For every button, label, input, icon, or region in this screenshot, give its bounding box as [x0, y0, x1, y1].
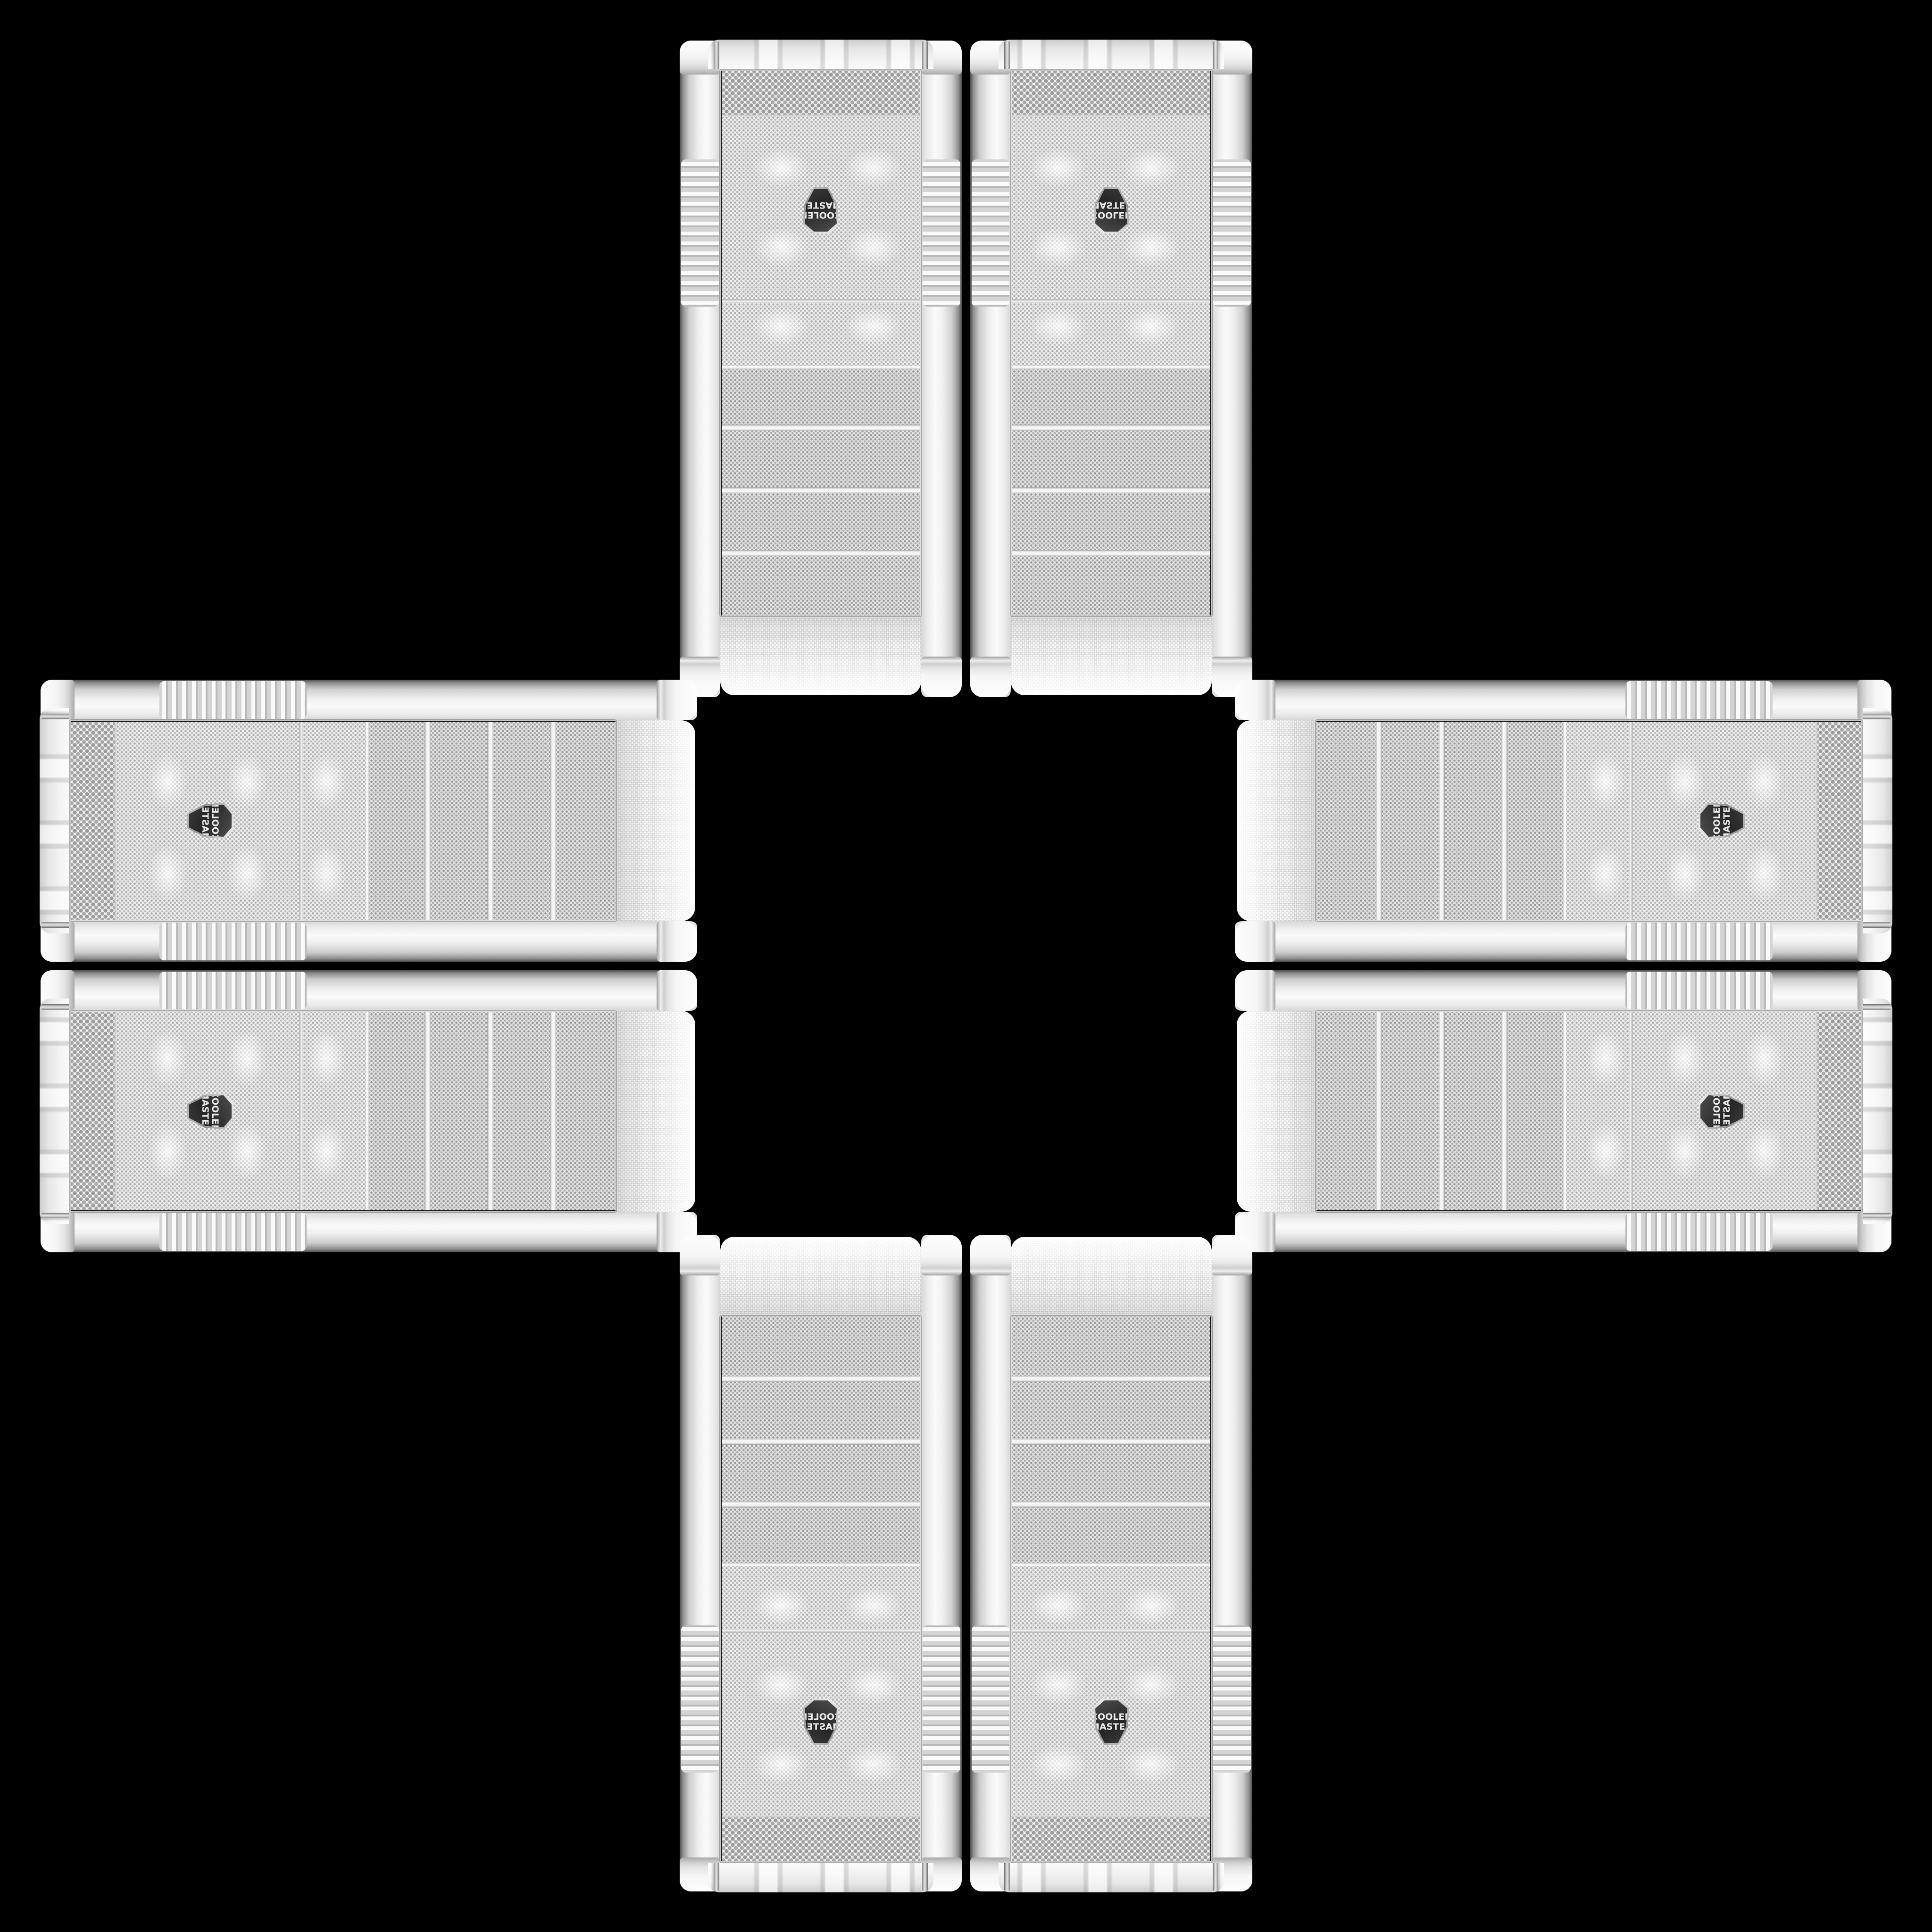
case-front-panel: COOLER MASTER [38, 970, 702, 1252]
rib-grip [681, 159, 719, 307]
bottom-lip [999, 1863, 1224, 1892]
bay-separator [1501, 1012, 1507, 1210]
panel-groove [1012, 1629, 1210, 1633]
drive-bay-mesh [722, 1316, 920, 1566]
top-mesh-dome [1237, 720, 1314, 921]
side-rail-left [41, 921, 697, 962]
chrome-trim-left [1010, 71, 1012, 616]
chrome-trim-left [920, 71, 922, 616]
front-fan-mesh [1566, 1012, 1816, 1210]
bay-separator [425, 1012, 431, 1210]
bottom-mesh-band [70, 722, 116, 920]
rib-grip [681, 1625, 719, 1773]
bottom-mesh-band [1012, 1816, 1210, 1862]
drive-bay-mesh [1316, 722, 1566, 920]
bay-separator [1012, 1501, 1210, 1507]
cooler-master-badge: COOLER MASTER [1699, 803, 1745, 839]
rail-cap-top [657, 921, 697, 962]
rib-grip [923, 1625, 960, 1773]
front-fan-mesh [722, 116, 920, 366]
badge-text-line1: COOLER [1712, 1091, 1722, 1132]
drive-bay-mesh [366, 722, 616, 920]
bottom-lip [1863, 999, 1892, 1224]
front-fan-mesh [1012, 1566, 1210, 1816]
rib-grip [972, 1625, 1009, 1773]
rail-cap-top [1235, 970, 1275, 1011]
foot-left [1863, 922, 1890, 928]
pc-case-top-right: COOLER MASTER [970, 38, 1252, 702]
top-mesh-dome [618, 720, 695, 921]
rib-grip [159, 923, 307, 960]
chrome-trim-right [71, 719, 616, 721]
top-mesh-dome [618, 1011, 695, 1212]
bay-separator [722, 425, 920, 431]
bay-separator [425, 722, 431, 920]
side-rail-left [970, 41, 1011, 697]
bay-separator [1439, 722, 1445, 920]
bay-separator [1012, 425, 1210, 431]
front-fan-mesh [116, 1012, 366, 1210]
chrome-trim-right [1211, 1316, 1213, 1861]
rib-grip [1213, 159, 1251, 307]
chrome-trim-left [920, 1316, 922, 1861]
chrome-trim-left [71, 920, 616, 922]
bottom-mesh-band [1816, 1012, 1862, 1210]
cooler-master-badge: COOLER MASTER [803, 187, 839, 233]
side-rail-right [680, 41, 720, 697]
front-fan-mesh [1566, 722, 1816, 920]
panel-groove [1629, 1012, 1633, 1210]
bottom-lip [708, 40, 933, 69]
pc-case-left-top: COOLER MASTER [38, 680, 702, 962]
panel-groove [722, 1629, 920, 1633]
stage: COOLER MASTER [0, 0, 1932, 1932]
foot-left [1004, 42, 1010, 69]
foot-right [1213, 1863, 1218, 1890]
front-fan-mesh [1012, 116, 1210, 366]
rib-grip [1625, 972, 1773, 1009]
panel-groove [299, 722, 303, 920]
bay-separator [722, 1439, 920, 1445]
side-rail-right [1235, 1212, 1891, 1252]
top-mesh-dome [720, 1237, 921, 1314]
cooler-master-badge: COOLER MASTER [1093, 1699, 1129, 1745]
bay-separator [1376, 722, 1382, 920]
foot-left [1863, 1004, 1890, 1010]
rail-cap-top [680, 1235, 720, 1275]
drive-bay-mesh [1012, 366, 1210, 616]
badge-text-line1: COOLER [1091, 211, 1132, 220]
rail-cap-top [921, 1235, 962, 1275]
cooler-master-badge: COOLER MASTER [1093, 187, 1129, 233]
chrome-trim-right [71, 1211, 616, 1213]
side-rail-right [1235, 680, 1891, 720]
pc-case-bottom-left: COOLER MASTER [680, 1230, 962, 1894]
bay-separator [487, 1012, 493, 1210]
chrome-trim-bottom [69, 720, 71, 921]
rib-grip [159, 1213, 307, 1251]
panel-groove [1012, 299, 1210, 303]
badge-text-line1: COOLER [1712, 800, 1722, 841]
drive-bay-mesh [366, 1012, 616, 1210]
bay-separator [550, 1012, 556, 1210]
side-rail-left [970, 1235, 1011, 1891]
panel-groove [299, 1012, 303, 1210]
top-mesh-dome [1011, 1237, 1212, 1314]
rib-grip [923, 159, 960, 307]
pc-case-right-top: COOLER MASTER [1230, 680, 1894, 962]
foot-right [1863, 714, 1890, 719]
side-rail-left [921, 41, 962, 697]
bay-separator [722, 1501, 920, 1507]
drive-bay-mesh [1316, 1012, 1566, 1210]
case-front-panel: COOLER MASTER [680, 1230, 962, 1894]
bottom-lip [40, 999, 69, 1224]
bay-separator [722, 1376, 920, 1382]
rib-grip [1625, 681, 1773, 719]
chrome-trim-right [1211, 71, 1213, 616]
badge-text-line1: COOLER [211, 1091, 220, 1132]
case-front-panel: COOLER MASTER [1230, 680, 1894, 962]
top-mesh-dome [1237, 1011, 1314, 1212]
chrome-trim-top [616, 1011, 618, 1212]
foot-left [922, 1863, 928, 1890]
rail-cap-top [657, 970, 697, 1011]
foot-right [42, 1213, 69, 1218]
rib-grip [1625, 923, 1773, 960]
foot-right [714, 42, 719, 69]
bottom-lip [999, 40, 1224, 69]
chrome-trim-top [720, 616, 921, 618]
chrome-trim-left [1316, 920, 1861, 922]
bay-separator [487, 722, 493, 920]
chrome-trim-top [1011, 616, 1212, 618]
bay-separator [1012, 550, 1210, 556]
foot-left [42, 1004, 69, 1010]
bay-separator [1376, 1012, 1382, 1210]
side-rail-left [41, 970, 697, 1011]
side-rail-right [41, 680, 697, 720]
top-mesh-dome [1011, 618, 1212, 695]
badge-text-line1: COOLER [1091, 1712, 1132, 1722]
cooler-master-badge: COOLER MASTER [1699, 1093, 1745, 1129]
pc-case-left-bottom: COOLER MASTER [38, 970, 702, 1252]
bay-separator [550, 722, 556, 920]
rail-cap-top [1235, 921, 1275, 962]
badge-text-line1: COOLER [211, 800, 220, 841]
bottom-mesh-band [1816, 722, 1862, 920]
bay-separator [1439, 1012, 1445, 1210]
rail-cap-top [921, 657, 962, 697]
foot-right [714, 1863, 719, 1890]
chrome-trim-right [719, 1316, 721, 1861]
cooler-master-badge: COOLER MASTER [187, 1093, 233, 1129]
rail-cap-top [1212, 1235, 1252, 1275]
side-rail-left [1235, 970, 1891, 1011]
bottom-mesh-band [722, 70, 920, 116]
chrome-trim-right [1316, 1211, 1861, 1213]
chrome-trim-left [1010, 1316, 1012, 1861]
case-front-panel: COOLER MASTER [680, 38, 962, 702]
rib-grip [1213, 1625, 1251, 1773]
chrome-trim-right [719, 71, 721, 616]
bay-separator [722, 550, 920, 556]
bottom-lip [708, 1863, 933, 1892]
side-rail-right [1212, 41, 1252, 697]
bay-separator [1012, 1376, 1210, 1382]
panel-groove [722, 299, 920, 303]
rib-grip [159, 972, 307, 1009]
front-fan-mesh [116, 722, 366, 920]
rib-grip [159, 681, 307, 719]
foot-right [1213, 42, 1218, 69]
case-front-panel: COOLER MASTER [970, 1230, 1252, 1894]
side-rail-left [921, 1235, 962, 1891]
chrome-trim-bottom [69, 1011, 71, 1212]
chrome-trim-bottom [1011, 69, 1212, 71]
chrome-trim-left [71, 1010, 616, 1012]
rail-cap-top [970, 1235, 1011, 1275]
top-mesh-dome [720, 618, 921, 695]
pc-case-top-left: COOLER MASTER [680, 38, 962, 702]
drive-bay-mesh [722, 366, 920, 616]
rail-cap-top [970, 657, 1011, 697]
rail-cap-top [1235, 680, 1275, 720]
foot-left [922, 42, 928, 69]
chrome-trim-bottom [720, 69, 921, 71]
pc-case-right-bottom: COOLER MASTER [1230, 970, 1894, 1252]
bay-separator [1012, 1439, 1210, 1445]
rail-cap-top [657, 680, 697, 720]
foot-right [1863, 1213, 1890, 1218]
case-front-panel: COOLER MASTER [1230, 970, 1894, 1252]
bay-separator [722, 487, 920, 493]
rib-grip [1625, 1213, 1773, 1251]
bay-separator [1501, 722, 1507, 920]
side-rail-right [680, 1235, 720, 1891]
cooler-master-badge: COOLER MASTER [803, 1699, 839, 1745]
badge-text-line1: COOLER [800, 211, 841, 220]
case-front-panel: COOLER MASTER [970, 38, 1252, 702]
bottom-mesh-band [70, 1012, 116, 1210]
chrome-trim-left [1316, 1010, 1861, 1012]
drive-bay-mesh [1012, 1316, 1210, 1566]
rib-grip [972, 159, 1009, 307]
chrome-trim-top [616, 720, 618, 921]
bottom-lip [1863, 708, 1892, 933]
side-rail-left [1235, 921, 1891, 962]
side-rail-right [41, 1212, 697, 1252]
badge-text-line1: COOLER [800, 1712, 841, 1722]
pc-case-bottom-right: COOLER MASTER [970, 1230, 1252, 1894]
front-fan-mesh [722, 1566, 920, 1816]
foot-left [42, 922, 69, 928]
bay-separator [1012, 487, 1210, 493]
side-rail-right [1212, 1235, 1252, 1891]
case-front-panel: COOLER MASTER [38, 680, 702, 962]
bottom-lip [40, 708, 69, 933]
cooler-master-badge: COOLER MASTER [187, 803, 233, 839]
foot-right [42, 714, 69, 719]
chrome-trim-right [1316, 719, 1861, 721]
bottom-mesh-band [722, 1816, 920, 1862]
foot-left [1004, 1863, 1010, 1890]
bottom-mesh-band [1012, 70, 1210, 116]
panel-groove [1629, 722, 1633, 920]
